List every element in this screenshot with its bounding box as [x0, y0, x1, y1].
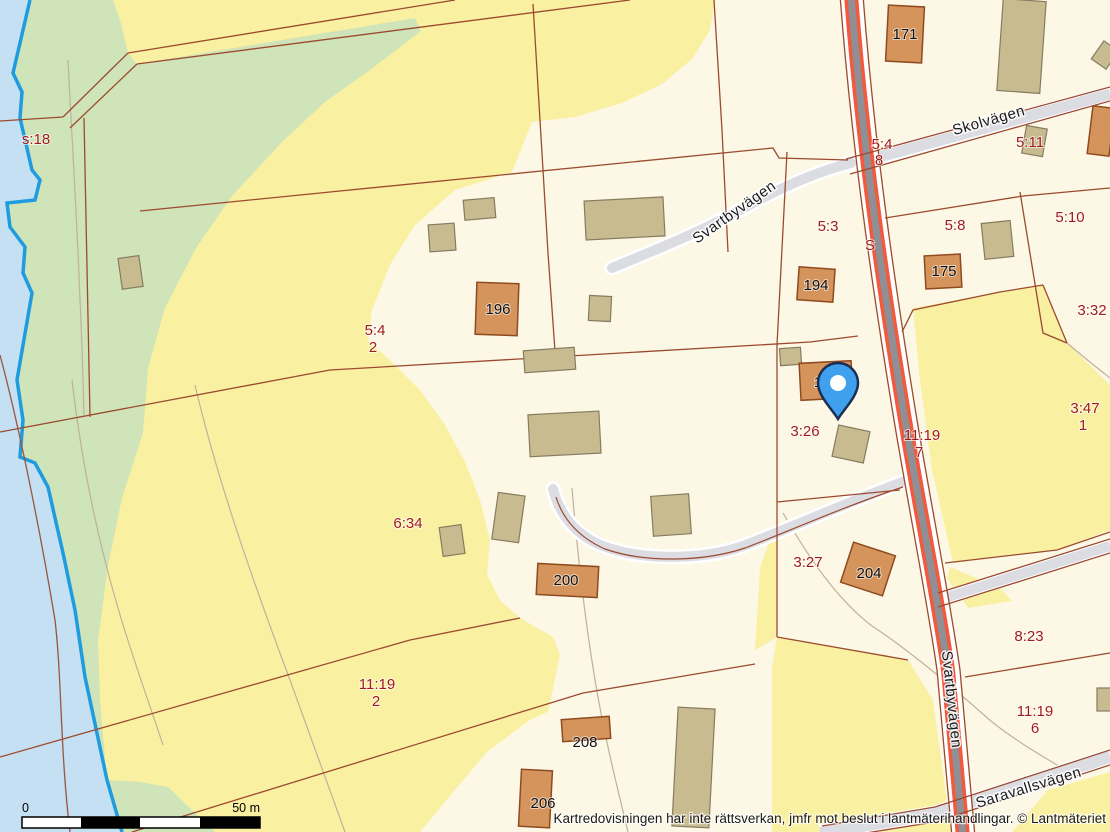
parcel-label-1119-2: 11:19 — [359, 676, 395, 693]
parcel-label-634: 6:34 — [393, 515, 422, 532]
parcel-label-1119-2b: 2 — [372, 693, 380, 710]
building-footprint — [428, 223, 456, 252]
parcel-label-347b: 1 — [1079, 417, 1087, 434]
building-footprint — [584, 197, 665, 240]
parcel-label-54-8b: 8 — [875, 152, 883, 169]
parcel-label-1119-6b: 6 — [1031, 720, 1039, 737]
parcel-label-s: S — [865, 237, 875, 254]
scale-bar-segment — [81, 817, 140, 828]
building-footprint — [118, 256, 143, 290]
parcel-label-1119-7: 11:19 — [904, 427, 940, 444]
building-footprint — [651, 494, 692, 537]
parcel-label-511: 5:11 — [1016, 134, 1044, 151]
building-footprint — [463, 198, 496, 221]
building-footprint — [492, 492, 525, 542]
parcel-label-53: 5:3 — [818, 218, 839, 235]
building-footprint — [779, 347, 801, 365]
building-label-171: 171 — [892, 26, 917, 43]
building-label-208: 208 — [572, 734, 597, 751]
parcel-label-327: 3:27 — [793, 554, 822, 571]
building-label-175: 175 — [931, 263, 956, 280]
building-label-204: 204 — [856, 565, 881, 582]
parcel-label-332: 3:32 — [1077, 302, 1106, 319]
building-footprint — [997, 0, 1046, 93]
parcel-label-1119-6: 11:19 — [1017, 703, 1053, 720]
building-footprint — [528, 411, 601, 457]
attribution-text: Kartredovisningen har inte rättsverkan, … — [554, 811, 1107, 826]
building-label-200: 200 — [553, 572, 578, 589]
building-footprint — [981, 221, 1014, 260]
building-footprint — [832, 425, 870, 463]
building-footprint — [588, 295, 611, 321]
parcel-label-1119-7b: 7 — [915, 444, 923, 461]
building-footprint — [672, 707, 715, 828]
scale-bar-zero-label: 0 — [22, 801, 29, 815]
parcel-label-823: 8:23 — [1014, 628, 1043, 645]
parcel-label-54-8: 5:4 — [872, 136, 893, 153]
building-label-194: 194 — [803, 277, 828, 294]
building-footprint — [439, 525, 465, 557]
parcel-label-326: 3:26 — [790, 423, 819, 440]
map-canvas[interactable]: 171 196 194 175 204 200 206 208 1 s:18 5… — [0, 0, 1110, 832]
building-label-206: 206 — [530, 795, 555, 812]
parcel-label-54-2: 5:4 — [365, 322, 386, 339]
scale-bar-max-label: 50 m — [232, 801, 260, 815]
parcel-label-510: 5:10 — [1055, 209, 1084, 226]
parcel-label-347: 3:47 — [1070, 400, 1099, 417]
building-footprint — [1097, 688, 1110, 711]
parcel-label-58: 5:8 — [945, 217, 966, 234]
parcel-label-s18: s:18 — [22, 131, 50, 148]
parcel-label-54-2b: 2 — [369, 339, 377, 356]
building-footprint — [523, 347, 575, 373]
pin-center-dot — [830, 375, 846, 391]
building-label-196: 196 — [485, 301, 510, 318]
scale-bar-segment — [200, 817, 260, 828]
